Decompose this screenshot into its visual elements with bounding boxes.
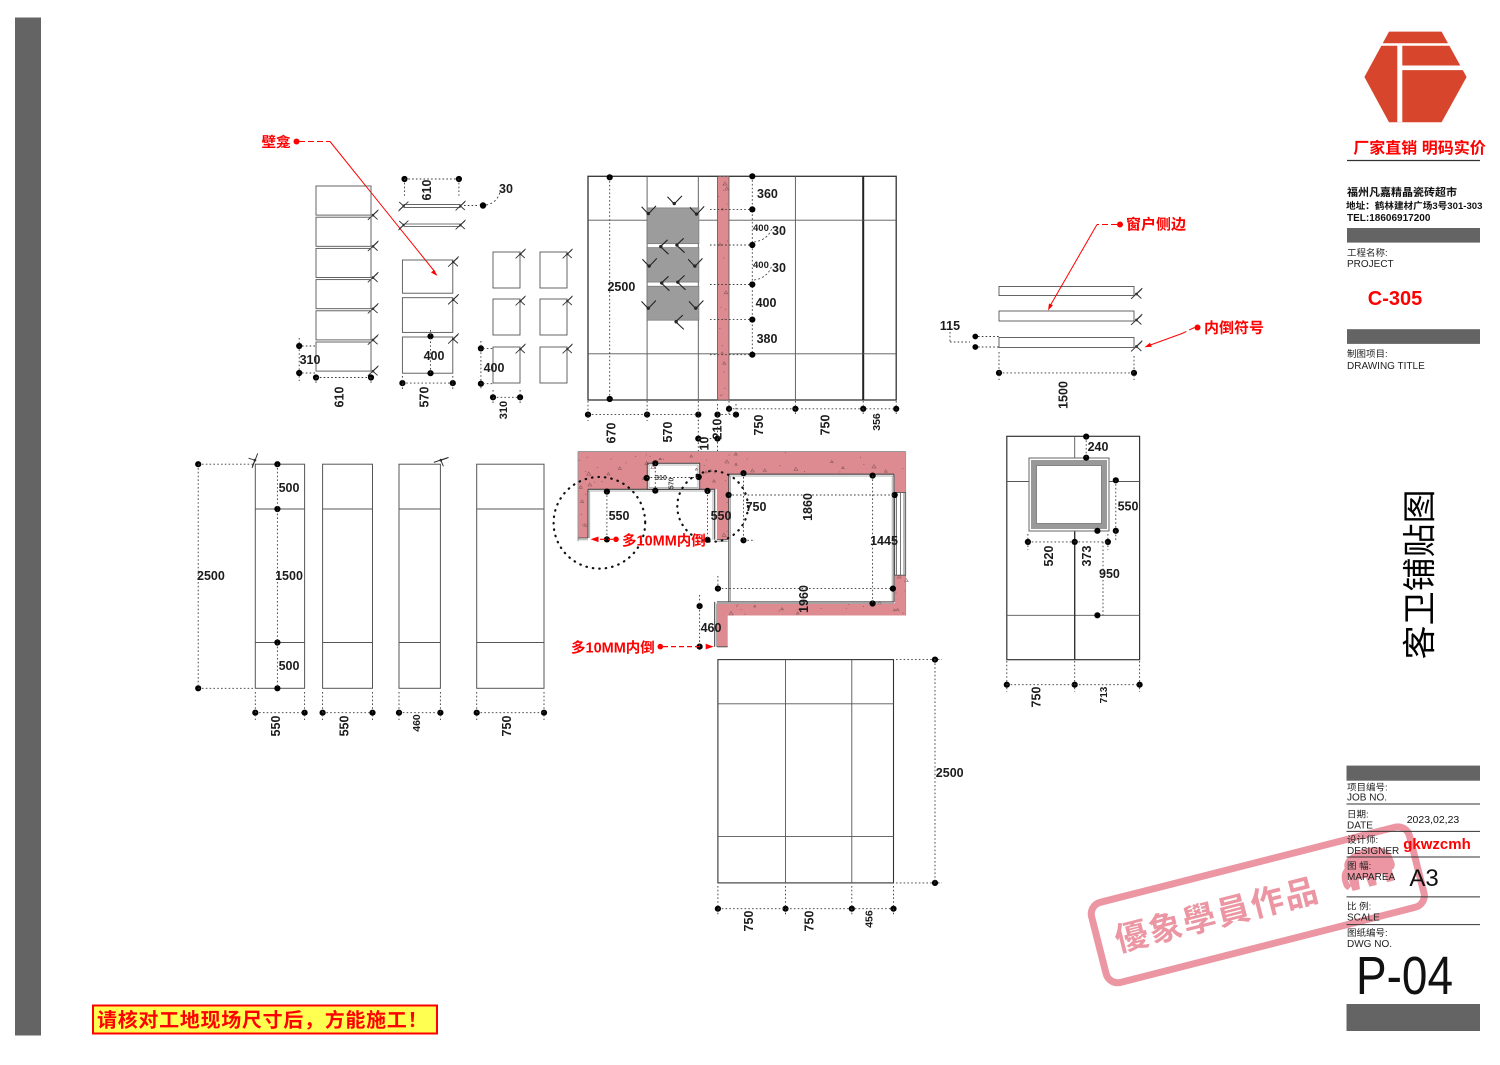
svg-text:550: 550 xyxy=(338,716,352,737)
svg-text:窗户侧边: 窗户侧边 xyxy=(1126,214,1186,235)
svg-text:750: 750 xyxy=(1030,687,1044,708)
svg-text:750: 750 xyxy=(752,415,766,436)
svg-text:MAPAREA: MAPAREA xyxy=(1347,872,1395,883)
svg-text:456: 456 xyxy=(864,910,876,928)
svg-text:1500: 1500 xyxy=(275,569,303,583)
svg-text:工程名称:: 工程名称: xyxy=(1347,245,1388,259)
svg-text:1500: 1500 xyxy=(1057,381,1071,409)
svg-text:地址：鹤林建材广场3号301-303: 地址：鹤林建材广场3号301-303 xyxy=(1346,198,1482,212)
svg-text:2023,02,23: 2023,02,23 xyxy=(1407,814,1460,826)
svg-text:670: 670 xyxy=(605,423,619,444)
svg-text:610: 610 xyxy=(420,180,434,201)
svg-text:240: 240 xyxy=(1088,440,1109,454)
svg-text:750: 750 xyxy=(746,500,767,514)
svg-text:2500: 2500 xyxy=(197,569,225,583)
svg-text:610: 610 xyxy=(333,387,347,408)
svg-text:950: 950 xyxy=(1099,567,1120,581)
svg-text:356: 356 xyxy=(871,413,883,431)
svg-text:310: 310 xyxy=(655,475,667,482)
svg-text:图 幅:: 图 幅: xyxy=(1347,858,1371,872)
svg-text:DATE: DATE xyxy=(1347,821,1373,832)
svg-text:C-305: C-305 xyxy=(1368,288,1422,310)
svg-text:500: 500 xyxy=(279,481,300,495)
svg-text:TEL:18606917200: TEL:18606917200 xyxy=(1347,213,1431,224)
svg-text:750: 750 xyxy=(819,415,833,436)
svg-text:400: 400 xyxy=(484,361,505,375)
svg-text:1960: 1960 xyxy=(797,585,811,613)
svg-text:壁龛: 壁龛 xyxy=(262,131,291,152)
svg-text:360: 360 xyxy=(757,187,778,201)
svg-text:多10MM内倒: 多10MM内倒 xyxy=(571,637,655,658)
svg-text:550: 550 xyxy=(711,509,732,523)
svg-text:2500: 2500 xyxy=(936,766,964,780)
svg-text:多10MM内倒: 多10MM内倒 xyxy=(622,530,706,551)
svg-text:30: 30 xyxy=(499,182,513,196)
svg-text:310: 310 xyxy=(498,401,510,419)
svg-text:550: 550 xyxy=(1118,500,1139,514)
svg-text:713: 713 xyxy=(1099,686,1110,703)
svg-text:30: 30 xyxy=(772,261,786,275)
svg-text:500: 500 xyxy=(279,659,300,673)
svg-text:115: 115 xyxy=(940,319,960,333)
svg-text:570: 570 xyxy=(661,422,675,443)
svg-text:750: 750 xyxy=(500,716,514,737)
svg-text:210: 210 xyxy=(711,419,725,440)
svg-text:400: 400 xyxy=(753,260,769,271)
svg-text:400: 400 xyxy=(756,296,777,310)
svg-text:请核对工地现场尺寸后，方能施工！: 请核对工地现场尺寸后，方能施工！ xyxy=(97,1004,428,1033)
svg-text:DESIGNER: DESIGNER xyxy=(1347,846,1399,857)
svg-text:30: 30 xyxy=(772,224,786,238)
svg-text:项目编号:: 项目编号: xyxy=(1347,780,1388,794)
svg-text:380: 380 xyxy=(757,332,778,346)
svg-text:图纸编号:: 图纸编号: xyxy=(1347,925,1388,939)
svg-text:比 例:: 比 例: xyxy=(1347,899,1371,913)
svg-text:PROJECT: PROJECT xyxy=(1347,259,1394,270)
svg-text:570: 570 xyxy=(418,387,432,408)
svg-text:1860: 1860 xyxy=(801,493,815,521)
svg-text:460: 460 xyxy=(411,714,423,732)
svg-text:550: 550 xyxy=(609,509,630,523)
svg-text:内倒符号: 内倒符号 xyxy=(1204,317,1264,338)
svg-text:SCALE: SCALE xyxy=(1347,913,1380,924)
svg-text:750: 750 xyxy=(803,911,817,932)
svg-text:JOB NO.: JOB NO. xyxy=(1347,793,1387,804)
svg-text:日期:: 日期: xyxy=(1347,807,1369,821)
svg-text:2500: 2500 xyxy=(607,280,635,294)
svg-text:1445: 1445 xyxy=(870,534,898,548)
svg-text:550: 550 xyxy=(269,716,283,737)
svg-text:520: 520 xyxy=(1042,546,1056,567)
svg-text:DRAWING TITLE: DRAWING TITLE xyxy=(1347,361,1425,372)
svg-text:400: 400 xyxy=(753,223,769,234)
svg-text:750: 750 xyxy=(742,911,756,932)
svg-text:客卫铺贴图: 客卫铺贴图 xyxy=(1393,489,1442,659)
svg-text:A3: A3 xyxy=(1409,865,1438,892)
svg-text:570: 570 xyxy=(669,477,676,489)
svg-text:310: 310 xyxy=(300,353,321,367)
svg-text:P-04: P-04 xyxy=(1356,946,1453,1006)
svg-text:设计师:: 设计师: xyxy=(1347,832,1378,846)
svg-text:制图项目:: 制图项目: xyxy=(1347,346,1388,360)
svg-text:厂家直销 明码实价: 厂家直销 明码实价 xyxy=(1353,135,1485,159)
svg-text:gkwzcmh: gkwzcmh xyxy=(1403,836,1471,853)
svg-text:460: 460 xyxy=(701,621,722,635)
svg-text:400: 400 xyxy=(424,349,445,363)
svg-text:373: 373 xyxy=(1080,546,1094,567)
